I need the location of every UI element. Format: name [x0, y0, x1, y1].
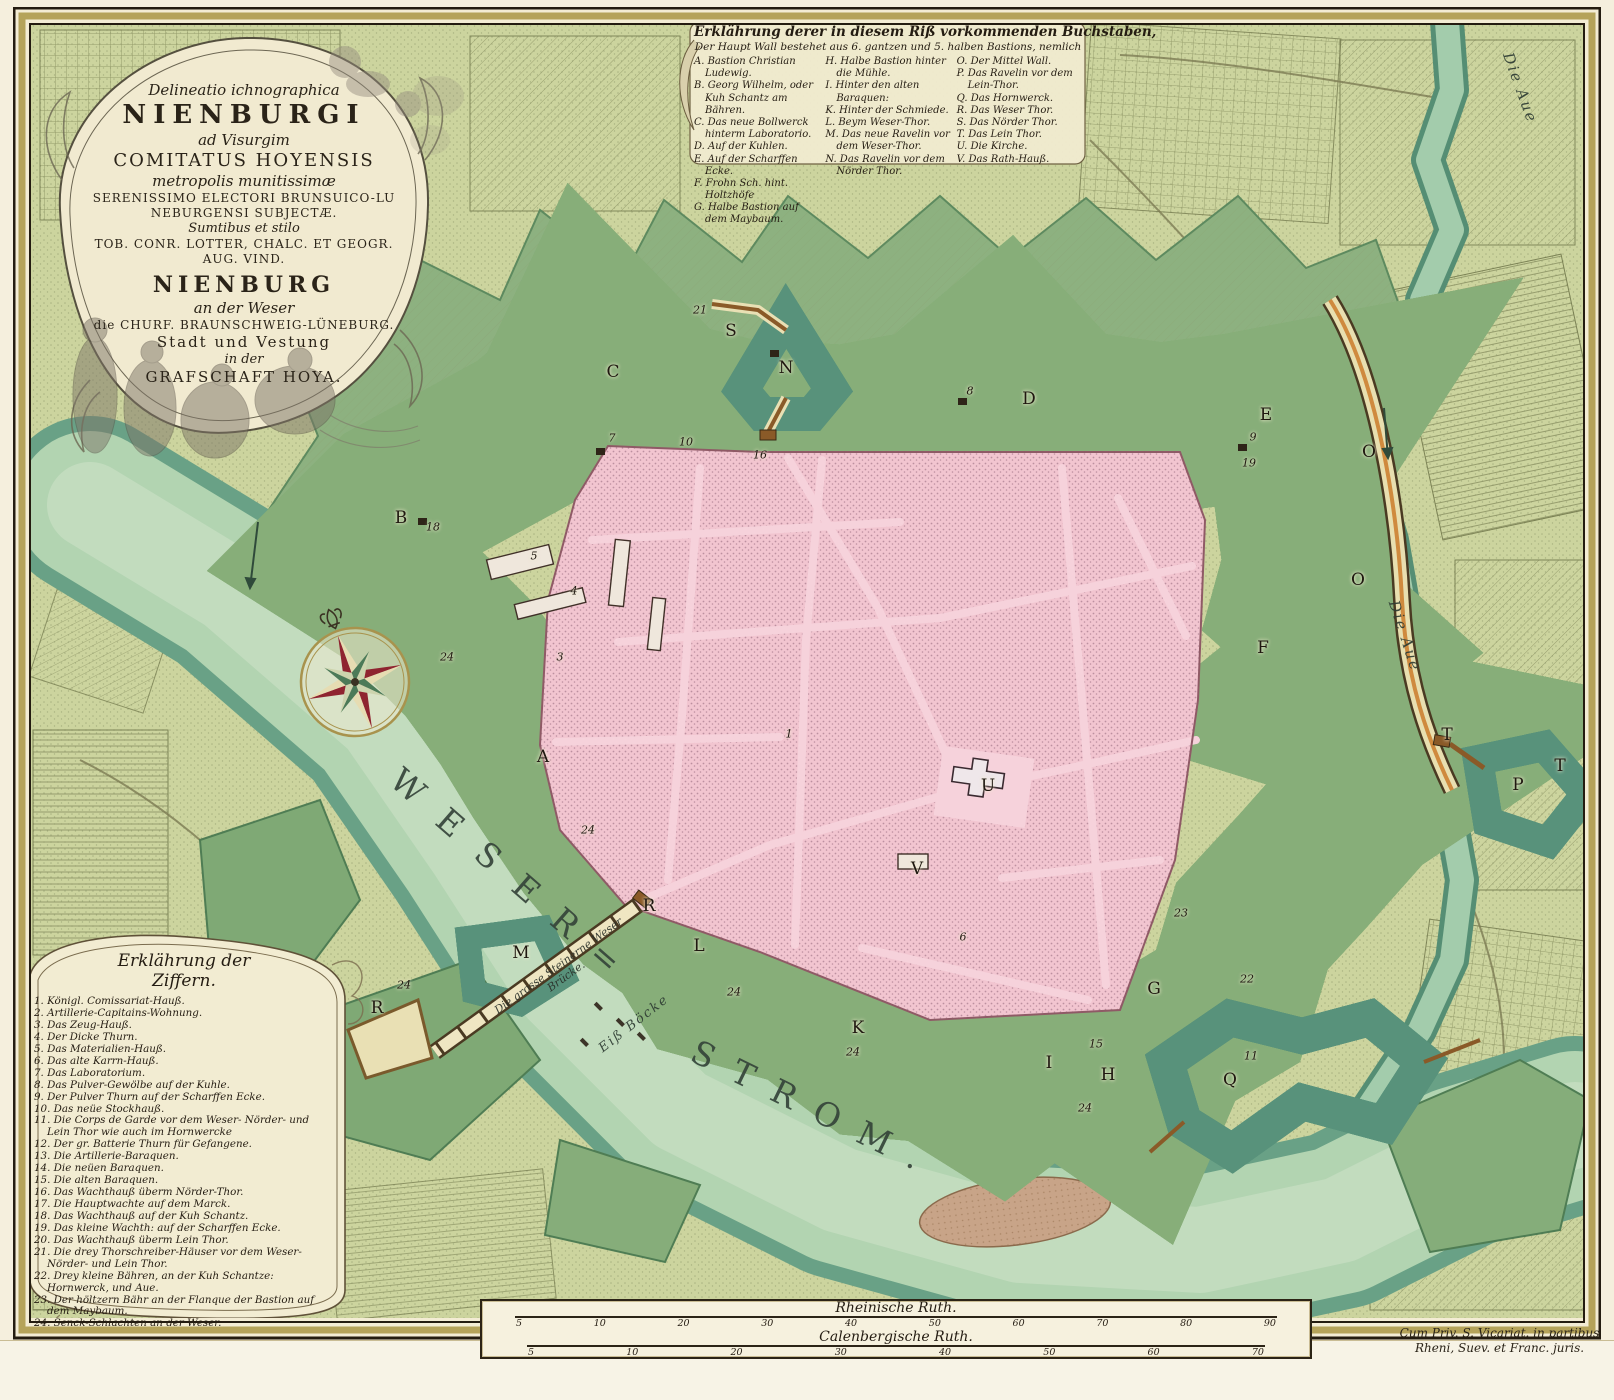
legend-entry: F. Frohn Sch. hint. Holtzhöfe: [694, 178, 819, 202]
number-marker: 11: [1244, 1050, 1258, 1063]
numbers-legend-title-1: Erklährung der: [34, 952, 334, 972]
bastion-letter: P: [1512, 775, 1523, 795]
legend-entry: U. Die Kirche.: [957, 141, 1082, 153]
legend-entry: L. Beym Weser-Thor.: [825, 117, 950, 129]
legend-entry: E. Auf der Scharffen Ecke.: [694, 154, 819, 178]
tick-label: 5: [528, 1348, 534, 1358]
legend-entry: 23. Der höltzern Bähr an der Flanque der…: [34, 1295, 334, 1319]
number-marker: 4: [571, 585, 578, 598]
legend-entry: O. Der Mittel Wall.: [957, 56, 1082, 68]
number-marker: 16: [753, 449, 767, 462]
legend-entry: 6. Das alte Karrn-Hauß.: [34, 1056, 334, 1068]
tick-label: 90: [1264, 1319, 1276, 1329]
noerder-gate: [760, 430, 776, 440]
numbers-legend-title-2: Ziffern.: [34, 972, 334, 992]
number-marker: 23: [1174, 907, 1188, 920]
letters-legend-subtitle: Der Haupt Wall bestehet aus 6. gantzen u…: [694, 41, 1082, 53]
title-line: die CHURF. BRAUNSCHWEIG-LÜNEBURG.: [72, 318, 416, 332]
tick-label: 70: [1096, 1319, 1108, 1329]
bastion-letter: O: [1362, 442, 1376, 462]
paper-margin-left: [0, 0, 13, 1400]
legend-entry: K. Hinter der Schmiede.: [825, 105, 950, 117]
tick-label: 40: [939, 1348, 951, 1358]
bastion-letter: R: [643, 896, 656, 916]
legend-entry: G. Halbe Bastion auf dem Maybaum.: [694, 202, 819, 226]
legend-entry: 24. Senck-Schlachten an der Weser.: [34, 1318, 334, 1330]
number-marker: 3: [557, 651, 564, 664]
number-marker: 24: [846, 1046, 860, 1059]
legend-entry: R. Das Weser Thor.: [957, 105, 1082, 117]
bastion-letter: T: [1441, 725, 1452, 745]
number-marker: 24: [727, 986, 741, 999]
number-marker: 21: [693, 304, 707, 317]
letters-legend-col1: A. Bastion Christian Ludewig.B. Georg Wi…: [694, 56, 819, 227]
bastion-letter: N: [779, 358, 794, 378]
tick-label: 50: [1043, 1348, 1055, 1358]
number-marker: 24: [581, 824, 595, 837]
bastion-letter: S: [725, 321, 737, 341]
legend-entry: 7. Das Laboratorium.: [34, 1068, 334, 1080]
tick-label: 40: [845, 1319, 857, 1329]
letters-legend-col3: O. Der Mittel Wall.P. Das Ravelin vor de…: [957, 56, 1082, 227]
bastion-letter: A: [537, 747, 549, 767]
title-line: Sumtibus et stilo: [72, 221, 416, 236]
tick-label: 50: [929, 1319, 941, 1329]
title-line: NEBURGENSI SUBJECTÆ.: [72, 206, 416, 220]
number-marker: 24: [440, 651, 454, 664]
bastion-letter: M: [512, 943, 529, 963]
title-line: Delineatio ichnographica: [72, 81, 416, 99]
privilege-imprint: Cum Priv. S. Vicariat. in partibus Rheni…: [1392, 1326, 1607, 1356]
tick-label: 20: [730, 1348, 742, 1358]
ruler1-label: Rheinische Ruth.: [835, 1301, 956, 1315]
title-line: in der: [72, 352, 416, 367]
bastion-letter: L: [693, 936, 704, 956]
number-marker: 18: [426, 521, 440, 534]
letters-legend-col2: H. Halbe Bastion hinter die Mühle.I. Hin…: [825, 56, 950, 227]
bastion-letter: C: [606, 362, 619, 382]
bastion-letter: T: [1554, 756, 1565, 776]
legend-entry: V. Das Rath-Hauß.: [957, 154, 1082, 166]
number-marker: 22: [1240, 973, 1254, 986]
bastion-letter: K: [852, 1018, 865, 1038]
title-line: COMITATUS HOYENSIS: [72, 150, 416, 171]
legend-entry: H. Halbe Bastion hinter die Mühle.: [825, 56, 950, 80]
legend-entry: 11. Die Corps de Garde vor dem Weser- Nö…: [34, 1115, 334, 1139]
tick-label: 80: [1180, 1319, 1192, 1329]
legend-entry: C. Das neue Bollwerck hinterm Laboratori…: [694, 117, 819, 141]
number-marker: 15: [1089, 1038, 1103, 1051]
legend-entry: I. Hinter den alten Baraquen:: [825, 80, 950, 104]
bastion-letter: F: [1257, 638, 1269, 658]
legend-entry: T. Das Lein Thor.: [957, 129, 1082, 141]
bastion-letter: O: [1351, 570, 1365, 590]
legend-entry: 22. Drey kleine Bähren, an der Kuh Schan…: [34, 1271, 334, 1295]
bastion-letter: I: [1046, 1053, 1053, 1073]
tick-label: 10: [594, 1319, 606, 1329]
tick-label: 20: [677, 1319, 689, 1329]
number-marker: 1: [786, 728, 793, 741]
numbers-legend: Erklährung der Ziffern. 1. Königl. Comis…: [34, 952, 334, 1330]
legend-entry: B. Georg Wilhelm, oder Kuh Schantz am Bä…: [694, 80, 819, 117]
title-publisher: TOB. CONR. LOTTER, CHALC. ET GEOGR.: [72, 237, 416, 251]
numbers-legend-entries: 1. Königl. Comissariat-Hauß.2. Artilleri…: [34, 996, 334, 1330]
number-marker: 8: [967, 385, 974, 398]
title-line: SERENISSIMO ELECTORI BRUNSUICO-LU: [72, 191, 416, 205]
ruler2-ticks: 510203040506070: [528, 1348, 1264, 1358]
map-sheet: Delineatio ichnographica NIENBURGI ad Vi…: [0, 0, 1614, 1400]
tick-label: 10: [626, 1348, 638, 1358]
bastion-letter: H: [1101, 1065, 1116, 1085]
bastion-letter: Q: [1223, 1070, 1237, 1090]
legend-entry: A. Bastion Christian Ludewig.: [694, 56, 819, 80]
bastion-letter: V: [911, 859, 923, 879]
imprint-line1: Cum Priv. S. Vicariat. in partibus: [1392, 1326, 1607, 1341]
bastion-letter: D: [1022, 389, 1036, 409]
bastion-letter: G: [1147, 979, 1161, 999]
legend-entry: P. Das Ravelin vor dem Lein-Thor.: [957, 68, 1082, 92]
number-marker: 6: [960, 931, 967, 944]
legend-entry: 21. Die drey Thorschreiber-Häuser vor de…: [34, 1247, 334, 1271]
legend-entry: 8. Das Pulver-Gewölbe auf der Kuhle.: [34, 1080, 334, 1092]
bastion-letter: U: [981, 776, 995, 796]
title-cartouche: Delineatio ichnographica NIENBURGI ad Vi…: [72, 80, 416, 387]
title-german: NIENBURG: [72, 272, 416, 298]
legend-entry: Q. Das Hornwerck.: [957, 93, 1082, 105]
scale-panel: Rheinische Ruth. 5102030405060708090 Cal…: [480, 1299, 1312, 1359]
number-marker: 19: [1242, 457, 1256, 470]
letters-legend-title: Erklährung derer in diesem Riß vorkommen…: [694, 24, 1082, 40]
title-main: NIENBURGI: [72, 100, 416, 130]
legend-entry: 9. Der Pulver Thurn auf der Scharffen Ec…: [34, 1092, 334, 1104]
tick-label: 70: [1252, 1348, 1264, 1358]
paper-margin-top: [0, 0, 1614, 7]
legend-entry: N. Das Ravelin vor dem Nörder Thor.: [825, 154, 950, 178]
number-marker: 24: [1078, 1102, 1092, 1115]
number-marker: 5: [531, 550, 538, 563]
letters-legend: Erklährung derer in diesem Riß vorkommen…: [694, 24, 1082, 227]
ruler1-bar: [515, 1316, 1277, 1318]
tick-label: 60: [1148, 1348, 1160, 1358]
title-line: an der Weser: [72, 299, 416, 317]
paper-margin-right: [1601, 0, 1614, 1400]
legend-entry: S. Das Nörder Thor.: [957, 117, 1082, 129]
ruler1-ticks: 5102030405060708090: [516, 1319, 1276, 1329]
imprint-line2: Rheni, Suev. et Franc. juris.: [1392, 1341, 1607, 1356]
bastion-letter: E: [1260, 405, 1272, 425]
title-line: AUG. VIND.: [72, 252, 416, 266]
tick-label: 30: [761, 1319, 773, 1329]
legend-entry: 20. Das Wachthauß überm Lein Thor.: [34, 1235, 334, 1247]
bastion-letter: B: [395, 508, 408, 528]
tick-label: 5: [516, 1319, 522, 1329]
bastion-letter: R: [371, 998, 384, 1018]
title-line: metropolis munitissimæ: [72, 172, 416, 190]
number-marker: 10: [679, 436, 693, 449]
legend-entry: M. Das neue Ravelin vor dem Weser-Thor.: [825, 129, 950, 153]
tick-label: 60: [1013, 1319, 1025, 1329]
title-line: ad Visurgim: [72, 131, 416, 149]
ruler2-label: Calenbergische Ruth.: [819, 1330, 973, 1344]
number-marker: 24: [397, 979, 411, 992]
number-marker: 9: [1250, 431, 1257, 444]
number-marker: 7: [609, 432, 616, 445]
legend-entry: D. Auf der Kuhlen.: [694, 141, 819, 153]
title-line: Stadt und Vestung: [72, 333, 416, 351]
legend-entry: 5. Das Materialien-Hauß.: [34, 1044, 334, 1056]
title-line: GRAFSCHAFT HOYA.: [72, 368, 416, 386]
tick-label: 30: [835, 1348, 847, 1358]
